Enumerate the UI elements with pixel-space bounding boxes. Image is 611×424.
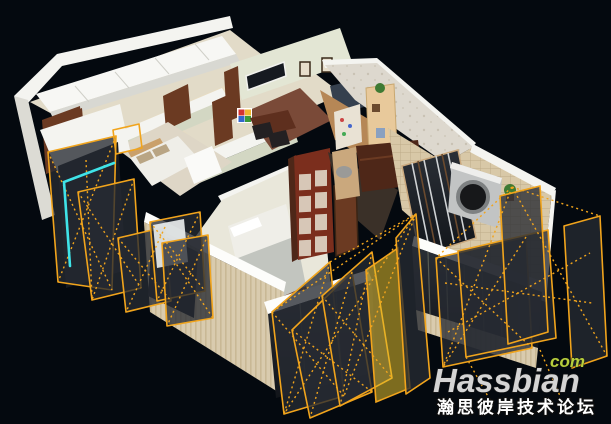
shelf-item (372, 104, 380, 112)
frustum-panel (500, 186, 548, 344)
picture-frame (300, 62, 310, 76)
trinket (342, 132, 346, 136)
wall-art-colorful (239, 116, 245, 122)
trinket (348, 124, 352, 128)
floorplan-3d-render: com Hassbian 瀚思彼岸技术论坛 (0, 0, 611, 424)
trinket-shelf (334, 104, 362, 150)
watermark: com Hassbian 瀚思彼岸技术论坛 (433, 352, 597, 418)
desk-chair (336, 166, 352, 178)
wall-art-colorful (239, 110, 245, 116)
washer-door (458, 182, 488, 212)
shelf-plant (375, 83, 385, 93)
watermark-brand: Hassbian (433, 362, 580, 399)
watermark-tagline: 瀚思彼岸技术论坛 (436, 397, 597, 418)
wall-art-colorful (245, 110, 251, 116)
shelf-item (376, 128, 385, 138)
wall-art-colorful (245, 116, 251, 122)
frustum-panel (162, 235, 213, 326)
trinket (340, 118, 344, 122)
